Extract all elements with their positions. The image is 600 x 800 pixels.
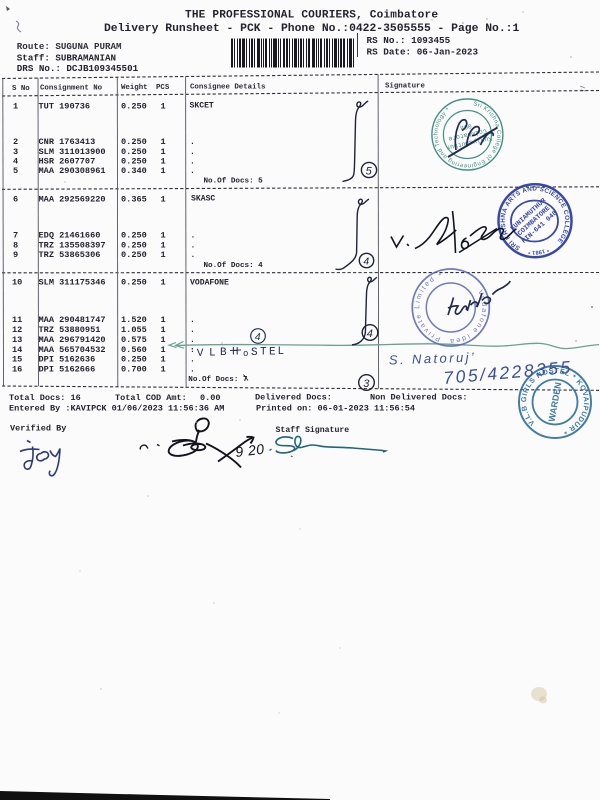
svg-text:VODAFONE: VODAFONE [190,278,229,287]
svg-text:1: 1 [161,147,166,157]
svg-text:4: 4 [255,331,261,343]
svg-text:0.365: 0.365 [121,194,147,204]
svg-text:14: 14 [12,345,22,355]
svg-text:1: 1 [161,364,166,374]
svg-text:HSR 2607707: HSR 2607707 [39,157,96,167]
svg-text:1: 1 [161,102,166,112]
svg-text:1: 1 [161,345,166,355]
svg-text:L: L [209,348,216,360]
svg-text:DPI 5162666: DPI 5162666 [39,364,96,374]
svg-text:0.250: 0.250 [121,231,147,241]
svg-text:·: · [189,344,196,356]
svg-text:0.250: 0.250 [121,102,147,112]
svg-text:H: H [232,347,239,359]
svg-text:MAA 565704532: MAA 565704532 [39,345,106,355]
svg-text:EDQ 21461660: EDQ 21461660 [39,231,101,241]
svg-text:0.250: 0.250 [121,277,147,287]
svg-text:1.520: 1.520 [121,315,147,325]
svg-text:0.340: 0.340 [121,166,147,176]
svg-text:Route: SUGUNA PURAM: Route: SUGUNA PURAM [17,41,122,52]
svg-text:5: 5 [13,166,18,176]
svg-text:12: 12 [12,325,22,335]
svg-text:3: 3 [363,378,370,390]
svg-text:5: 5 [366,165,373,177]
svg-text:No.Of Docs: 4: No.Of Docs: 4 [204,262,264,270]
svg-text:.: . [190,138,195,147]
svg-text:0.250: 0.250 [121,240,147,250]
svg-text:B: B [220,347,227,359]
svg-text:1: 1 [161,166,166,176]
svg-text:SLM 311013900: SLM 311013900 [39,147,106,157]
svg-text:S No: S No [12,85,30,93]
svg-text:DRS No.: DCJB109345501: DRS No.: DCJB109345501 [17,63,139,74]
svg-text:Verified By: Verified By [10,424,66,434]
svg-text:0.00: 0.00 [200,393,221,403]
svg-text:DPI 5162636: DPI 5162636 [39,355,96,365]
svg-text:1: 1 [161,137,166,147]
svg-text:1: 1 [161,315,166,325]
svg-text:MAA 290481747: MAA 290481747 [39,315,106,325]
svg-text:.: . [191,251,196,260]
svg-text:.: . [190,356,195,365]
svg-text:6: 6 [13,194,18,204]
svg-text:.: . [190,167,195,176]
svg-text:0.250: 0.250 [121,157,147,167]
svg-text:SKASC: SKASC [191,195,215,204]
svg-text:.: . [190,365,195,374]
svg-text:3: 3 [13,147,18,157]
svg-text:TRZ 135508397: TRZ 135508397 [39,240,106,250]
svg-text:MAA 296791420: MAA 296791420 [39,335,106,345]
svg-text:0.560: 0.560 [121,345,147,355]
svg-text:9: 9 [13,250,18,260]
svg-text:Staff: SUBRAMANIAN: Staff: SUBRAMANIAN [17,52,116,63]
svg-text:.: . [191,232,196,241]
svg-text:THE PROFESSIONAL COURIERS, Coi: THE PROFESSIONAL COURIERS, Coimbatore [185,10,438,22]
svg-text:No.Of Docs: 5: No.Of Docs: 5 [204,177,264,185]
svg-text:1.055: 1.055 [121,325,147,335]
svg-text:Consignee Details: Consignee Details [190,84,265,92]
svg-text:Signature: Signature [385,83,425,91]
svg-text:L: L [278,346,285,358]
svg-text:PCS: PCS [156,84,170,92]
svg-text:0.250: 0.250 [121,355,147,365]
svg-text:No.Of Docs: 7: No.Of Docs: 7 [188,376,248,384]
svg-text:1: 1 [161,231,166,241]
svg-text:Printed on: 06-01-2023 11:56:5: Printed on: 06-01-2023 11:56:54 [256,404,415,414]
svg-text:SKCET: SKCET [190,102,214,111]
svg-text:8: 8 [13,240,18,250]
svg-text:13: 13 [12,335,22,345]
svg-text:0.700: 0.700 [121,364,147,374]
svg-text:RS No.: 1093455: RS No.: 1093455 [367,35,451,46]
svg-text:T: T [260,347,267,359]
svg-text:4: 4 [13,157,18,167]
svg-text:4: 4 [367,328,373,340]
svg-text:0.575: 0.575 [121,335,147,345]
svg-text:0.250: 0.250 [121,137,147,147]
svg-text:MAA 292569220: MAA 292569220 [39,194,106,204]
svg-text:1: 1 [161,194,166,204]
svg-text:7: 7 [13,231,18,241]
svg-text:2: 2 [13,137,18,147]
svg-text:Non Delivered Docs:: Non Delivered Docs: [370,393,467,403]
svg-text:Delivery Runsheet - PCK - Phon: Delivery Runsheet - PCK - Phone No.:0422… [104,23,519,35]
svg-text:1: 1 [161,335,166,345]
svg-text:Total COD Amt:: Total COD Amt: [115,393,187,403]
svg-text:0.250: 0.250 [121,250,147,260]
svg-text:E: E [269,346,276,358]
svg-text:SLM 311175346: SLM 311175346 [39,277,106,287]
svg-text:.: . [191,241,196,250]
svg-text:o: o [243,349,248,359]
svg-text:1: 1 [161,325,166,335]
svg-text:1: 1 [161,355,166,365]
svg-text:1: 1 [161,277,166,287]
svg-text:TUT 190736: TUT 190736 [39,102,91,112]
svg-text:Staff Signature: Staff Signature [276,425,350,435]
svg-text:16: 16 [12,364,22,374]
svg-text:.: . [190,316,195,325]
svg-text:1: 1 [161,157,166,167]
svg-text:Entered By :KAVIPCK 01/06/2023: Entered By :KAVIPCK 01/06/2023 11:56:36 … [9,404,224,414]
svg-text:Total Docs: 16: Total Docs: 16 [9,393,81,403]
svg-text:.: . [190,148,195,157]
svg-text:Delivered Docs:: Delivered Docs: [255,393,332,403]
svg-text:1: 1 [13,102,18,112]
svg-text:15: 15 [12,355,22,365]
svg-text:11: 11 [12,315,22,325]
svg-text:1: 1 [161,250,166,260]
svg-text:.: . [190,326,195,335]
svg-text:CNR 1763413: CNR 1763413 [39,137,96,147]
svg-text:S: S [251,347,258,359]
svg-text:RS Date: 06-Jan-2023: RS Date: 06-Jan-2023 [367,47,479,58]
svg-text:MAA 290308961: MAA 290308961 [39,166,106,176]
svg-text:V: V [197,348,204,360]
svg-text:Weight: Weight [121,84,148,92]
svg-text:.: . [190,158,195,167]
svg-text:Consignment No: Consignment No [40,85,103,93]
svg-text:10: 10 [12,277,22,287]
svg-text:4: 4 [363,256,369,268]
svg-text:TRZ 53880951: TRZ 53880951 [39,325,101,335]
svg-text:1: 1 [161,240,166,250]
svg-text:TRZ 53865306: TRZ 53865306 [39,250,101,260]
svg-text:0.250: 0.250 [121,147,147,157]
